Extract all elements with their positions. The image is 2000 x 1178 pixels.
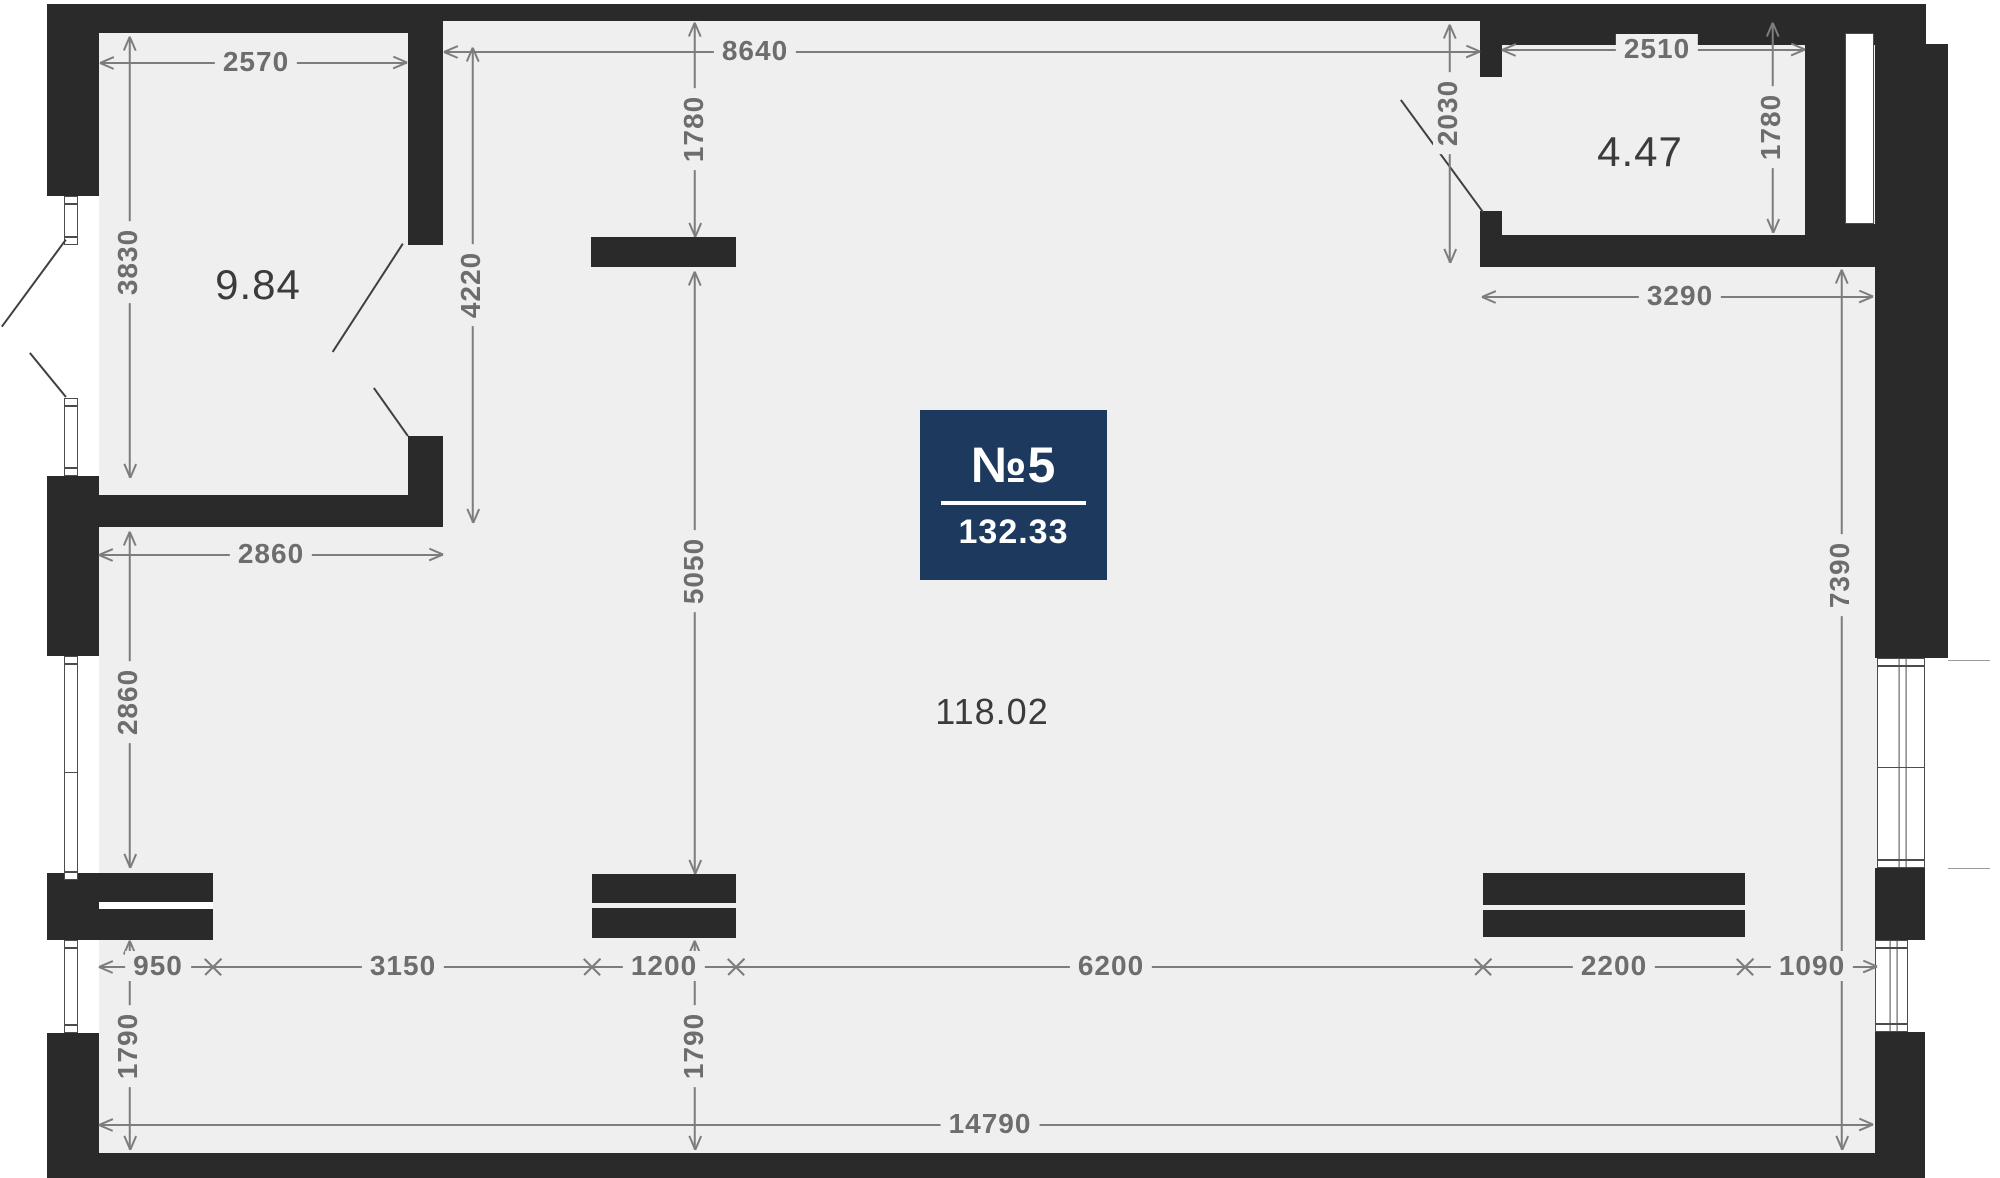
dim-1780-right-label: 1780 xyxy=(1756,86,1786,168)
ext-right-upper xyxy=(1948,660,1990,661)
window-right-low-mullion-a xyxy=(1889,940,1890,1032)
dim-6200-label: 6200 xyxy=(1070,951,1152,981)
door-swing-bay-lower xyxy=(29,352,66,397)
dim-2860-v-label: 2860 xyxy=(113,661,143,743)
dim-8640-line xyxy=(444,51,1480,53)
dim-2570-label: 2570 xyxy=(215,47,297,77)
window-left-4-cap-top xyxy=(64,947,78,948)
dim-1780-center-label: 1780 xyxy=(679,88,709,170)
left-wall-mid xyxy=(47,476,99,656)
shaft-block xyxy=(591,237,736,267)
dim-2200-label: 2200 xyxy=(1573,951,1655,981)
dim-2030-label: 2030 xyxy=(1433,72,1463,154)
window-left-3-cap-bottom xyxy=(64,871,78,872)
wall-under-room1 xyxy=(99,495,443,527)
window-right-low-cap-bottom xyxy=(1875,1023,1908,1024)
dim-8640-label: 8640 xyxy=(714,36,796,66)
room2-right-wall xyxy=(1805,45,1845,235)
dim-3150-label: 3150 xyxy=(362,951,444,981)
hall-stub-bottom xyxy=(1480,211,1502,235)
window-right-low-cap-top xyxy=(1875,947,1908,948)
right-wall-lower xyxy=(1875,1032,1925,1178)
window-right-mid-mullion-a xyxy=(1898,658,1899,868)
window-left-3 xyxy=(64,656,78,880)
right-slot-fill xyxy=(1845,224,1875,267)
top-wall-middle xyxy=(443,4,1502,21)
unit-badge: №5 132.33 xyxy=(920,410,1107,580)
window-left-1-cap-top xyxy=(64,203,78,204)
dim-2860-h-label: 2860 xyxy=(230,539,312,569)
dim-1090-label: 1090 xyxy=(1771,951,1853,981)
window-right-low xyxy=(1875,940,1908,1032)
right-wall-mid xyxy=(1875,868,1925,940)
cabinet-center-a xyxy=(592,874,736,903)
floor xyxy=(99,21,1877,1153)
cabinet-right-b xyxy=(1483,910,1745,937)
dim-3830-label: 3830 xyxy=(113,221,143,303)
hall-stub-top xyxy=(1480,21,1502,77)
window-right-mid-cap-bottom xyxy=(1877,859,1925,860)
cabinet-center-b xyxy=(592,908,736,938)
dim-7390-label: 7390 xyxy=(1825,534,1855,616)
window-right-mid xyxy=(1877,658,1925,868)
area-label-main-room: 118.02 xyxy=(935,691,1048,733)
dim-4220-label: 4220 xyxy=(456,244,486,326)
window-left-4-cap-bottom xyxy=(64,1024,78,1025)
window-right-low-mullion-b xyxy=(1896,940,1897,1032)
badge-divider xyxy=(941,501,1087,505)
dim-14790-label: 14790 xyxy=(941,1109,1040,1139)
floor-plan: 2570864025101780422050502030178038303290… xyxy=(0,0,2000,1178)
dim-1200-label: 1200 xyxy=(623,951,705,981)
door-swing-bay-upper xyxy=(1,240,66,328)
dim-3290-label: 3290 xyxy=(1639,281,1721,311)
bottom-wall xyxy=(47,1153,1925,1178)
unit-total-area: 132.33 xyxy=(959,513,1069,551)
top-wall-left xyxy=(47,4,443,33)
dim-2510-label: 2510 xyxy=(1616,34,1698,64)
window-right-mid-mullion-b xyxy=(1905,658,1906,868)
window-left-3-rail xyxy=(64,772,78,773)
window-left-4 xyxy=(64,940,78,1033)
left-wall-upper xyxy=(47,33,99,196)
unit-number-label: №5 xyxy=(971,439,1057,491)
window-right-mid-cap-top xyxy=(1877,665,1925,666)
right-wall-upper xyxy=(1875,44,1948,658)
dim-1790-center-label: 1790 xyxy=(679,1005,709,1087)
area-label-room-1: 9.84 xyxy=(215,261,301,309)
room2-bottom-wall xyxy=(1480,235,1875,267)
ext-right-lower xyxy=(1948,868,1990,869)
window-left-1-cap-bottom xyxy=(64,236,78,237)
window-right-slot xyxy=(1845,33,1874,224)
window-left-3-cap-top xyxy=(64,663,78,664)
window-left-2-cap-top xyxy=(64,405,78,406)
dim-5050-label: 5050 xyxy=(679,530,709,612)
dim-950-label: 950 xyxy=(125,951,191,981)
window-right-mid-rail xyxy=(1877,767,1925,768)
dim-1790-left-label: 1790 xyxy=(113,1005,143,1087)
cabinet-right-a xyxy=(1483,873,1745,905)
window-left-2 xyxy=(64,398,78,476)
cabinet-left-slit xyxy=(99,902,213,909)
window-left-2-cap-bottom xyxy=(64,467,78,468)
area-label-room-2: 4.47 xyxy=(1597,128,1683,176)
room1-right-wall xyxy=(408,33,443,245)
dim-7390-line xyxy=(1841,270,1843,1150)
